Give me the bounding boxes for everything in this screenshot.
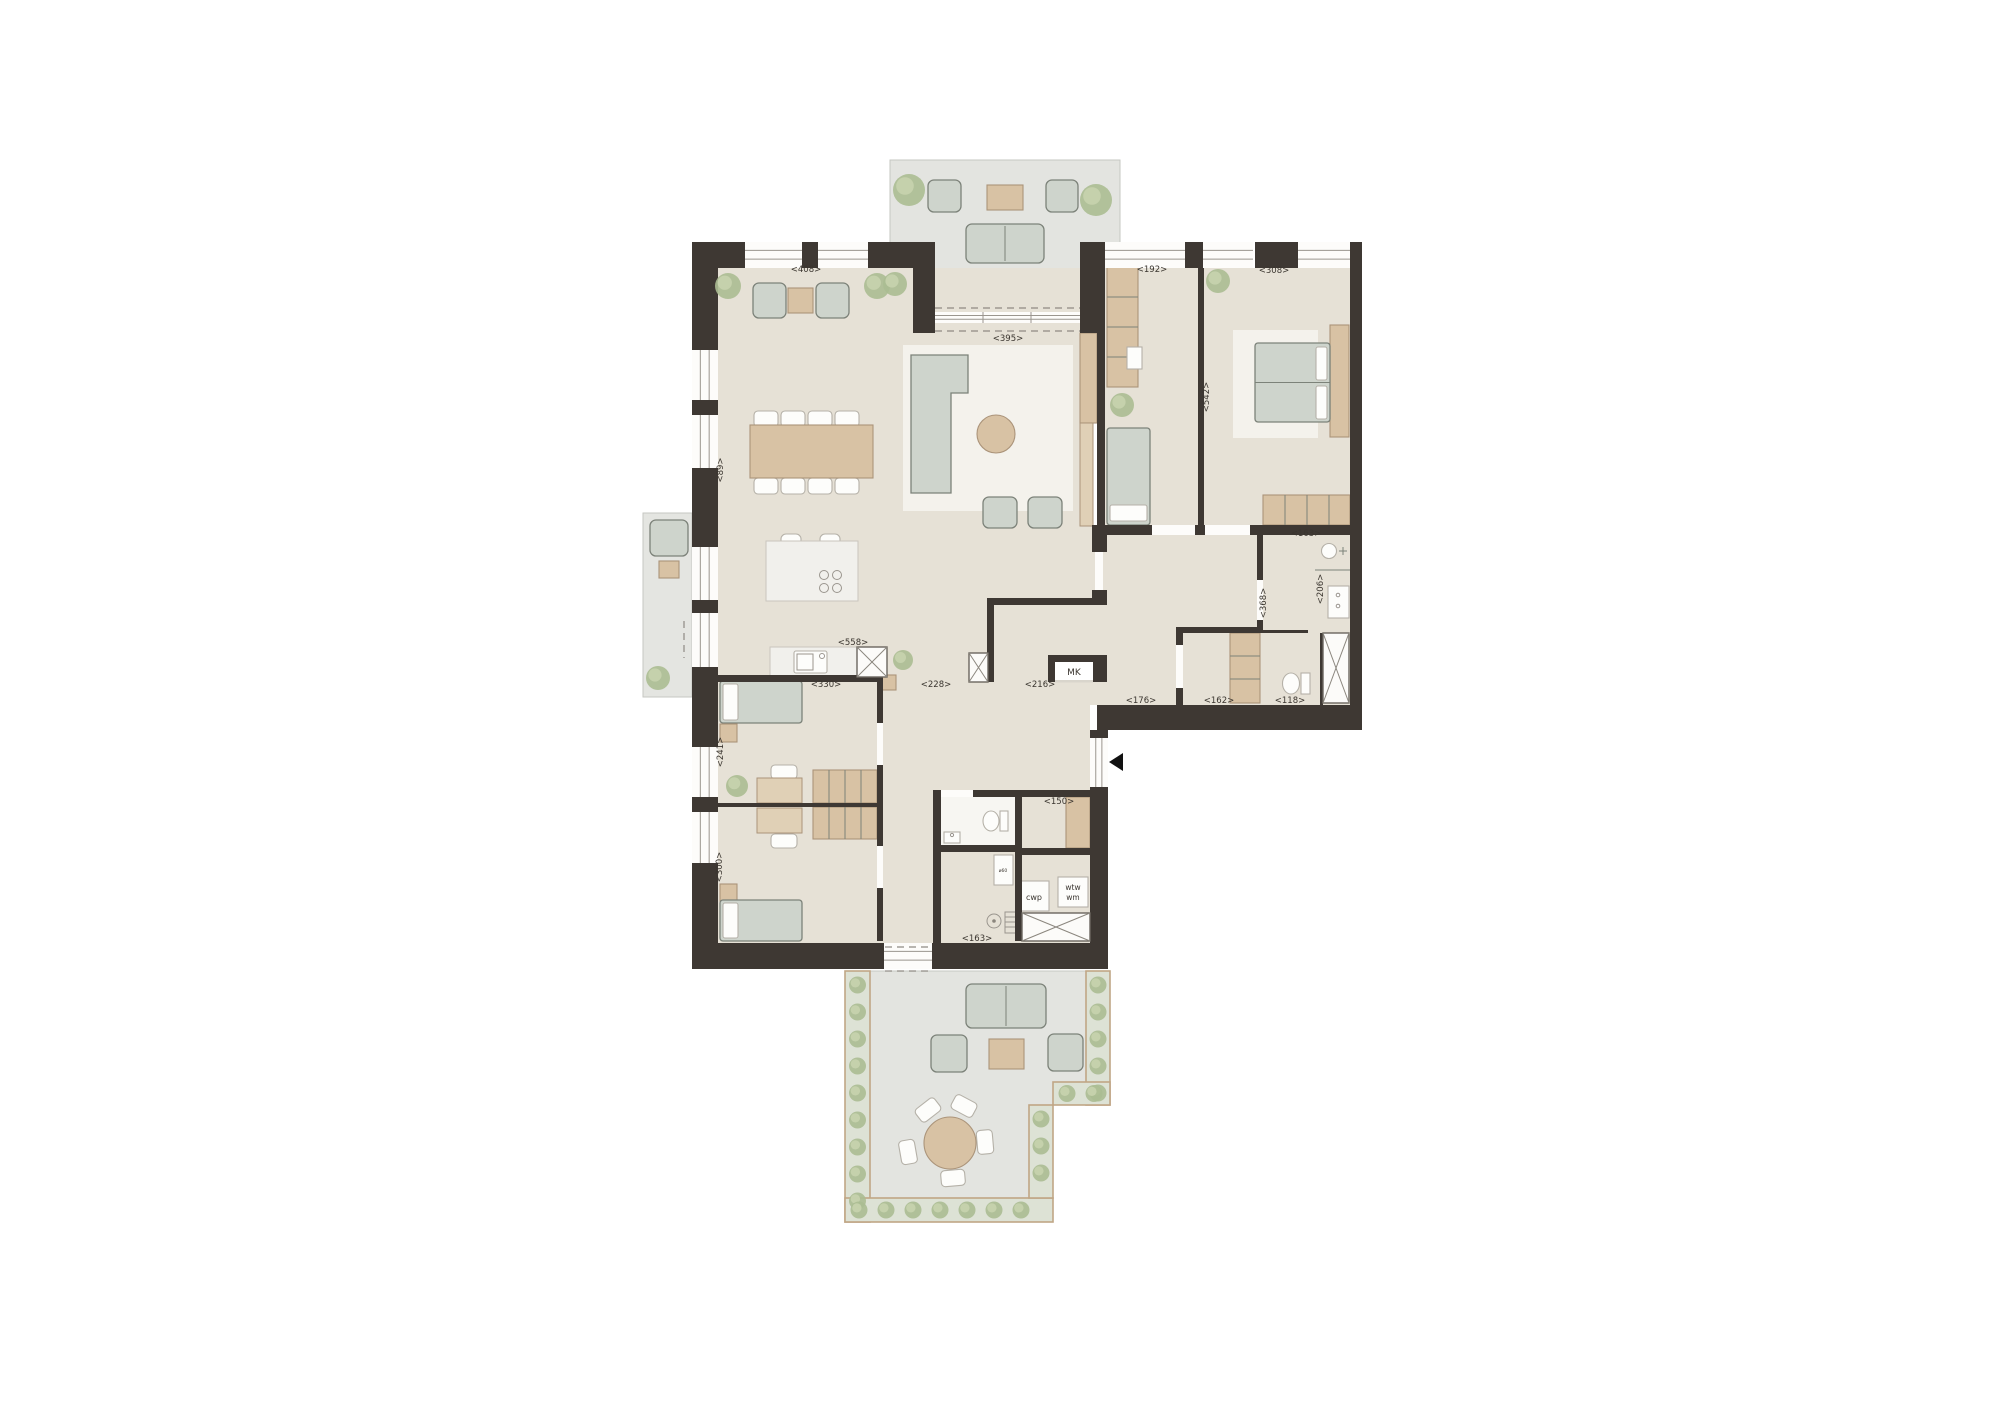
dimension-label: <192> [1137,265,1167,275]
dimension-label: <216> [1025,680,1055,690]
plan-shape [1048,1034,1083,1071]
nightstand [720,884,737,901]
plan-shape [808,478,832,494]
plant-icon [648,668,661,681]
dimension-label: <89> [716,457,726,482]
door-opening [877,846,883,888]
plan-shape [1000,811,1008,831]
plan-shape [1301,673,1310,694]
plant-icon [1060,1087,1069,1096]
dimension-label: <150> [1044,797,1074,807]
window [1105,242,1138,268]
plan-shape [754,478,778,494]
plan-shape [781,478,805,494]
room-label: wtw [1065,883,1080,892]
wall-segment [1093,662,1107,682]
plan-shape [928,180,961,212]
desk [757,808,802,833]
wall-segment [1195,525,1205,535]
meter-cupboard-door [1055,680,1093,683]
dining-table [750,425,873,478]
pillow [723,903,738,938]
door-opening [1095,552,1103,590]
dimension-label: <163> [962,934,992,944]
room-label: cwp [1026,893,1042,902]
plant-icon [851,1167,860,1176]
wardrobe [1230,633,1260,703]
window [692,415,718,468]
dimension-label: <162> [1204,696,1234,706]
plant-icon [728,777,740,789]
pillow [1110,505,1147,521]
frame-line [950,833,953,836]
plant-icon [851,1032,860,1041]
door-opening [1205,525,1250,535]
plant-icon [987,1203,996,1212]
sliding-door [935,312,1080,323]
wall-segment [1185,242,1203,268]
dimension-label: <300> [715,852,725,882]
ottoman [1028,497,1062,528]
plant-icon [1091,1059,1100,1068]
plan-shape [992,919,996,923]
plant-icon [885,274,898,287]
cabinet [1080,333,1097,423]
desk [1127,347,1142,369]
plant-icon [1208,271,1221,284]
round-dining-table [924,1117,976,1169]
plant-icon [851,1005,860,1014]
room-label: ø60 [999,868,1008,874]
wall-segment [692,797,718,812]
wall-segment [692,675,883,682]
dimension-label: <558> [838,638,868,648]
plant-icon [851,1059,860,1068]
wall-segment [1092,525,1152,535]
door-opening [877,723,883,765]
sink-icon [794,651,827,673]
wall-segment [718,803,877,807]
pillow [723,684,738,720]
plant-icon [879,1203,888,1212]
cabinet [1080,423,1093,526]
wall-segment [692,468,718,547]
kitchen-island [766,541,858,601]
plant-icon [851,1140,860,1149]
window [818,242,868,268]
dimension-label: <395> [993,334,1023,344]
plant-icon [1034,1112,1043,1121]
armchair [753,283,786,318]
coffee-table [977,415,1015,453]
wall-segment [933,845,1015,852]
room-label: MK [1067,668,1082,678]
dimension-label: <241> [716,737,726,767]
dimension-label: <542> [1202,382,1212,412]
wall-segment [877,888,883,941]
plant-icon [851,1086,860,1095]
plan-shape [940,1169,965,1187]
wall-segment [868,242,935,268]
wall-segment [692,400,718,415]
dimension-label: <330> [811,680,841,690]
wall-segment [1022,848,1090,855]
plan-shape [1316,386,1327,419]
plant-icon [1091,1005,1100,1014]
dimension-label: <408> [791,265,821,275]
wall-segment [987,598,1107,605]
window [692,613,718,667]
desk [757,778,802,803]
window [692,747,718,797]
wall-segment [1015,797,1022,941]
plant-icon [867,276,881,290]
wall-segment [1257,535,1263,580]
balcony-table [659,561,679,578]
wall-segment [877,681,883,723]
wall-segment [692,268,718,350]
plant-icon [1034,1139,1043,1148]
window [1203,242,1253,268]
wall-segment [932,943,1098,969]
plant-icon [851,1113,860,1122]
wall-segment [1048,655,1107,662]
headboard [1330,325,1349,437]
window [692,350,718,400]
plant-icon [851,978,860,987]
plan-shape [983,811,999,831]
plan-shape [987,185,1023,210]
wtw-wm-unit [1058,877,1088,907]
frame-line [1336,593,1340,597]
wall-segment [1048,662,1055,682]
plan-shape [1046,180,1078,212]
door-opening [1176,645,1183,688]
window [1298,242,1350,268]
plant-icon [718,276,732,290]
plan-shape [976,1129,994,1154]
plan-shape [1316,347,1327,380]
dimension-label: <163> [1291,529,1321,539]
wall-segment [1176,633,1183,645]
wall-segment [1257,620,1263,627]
floor-plan-drawing: <408><395><192><308><542><163><89><558><… [0,0,2000,1414]
floor-plan-page: <408><395><192><308><542><163><89><558><… [0,0,2000,1414]
plant-icon [895,652,906,663]
wall-segment [1090,943,1108,969]
window [692,547,718,600]
frame-line [820,654,825,659]
frame-line [1336,604,1340,608]
side-table [788,288,813,313]
toilet-icon [1283,673,1311,694]
plant-icon [1087,1087,1096,1096]
room-label: wm [1066,893,1079,902]
plant-icon [1091,978,1100,987]
wall-segment [1263,630,1308,633]
wall-segment [1090,730,1108,738]
plant-icon [1034,1166,1043,1175]
dining-set [750,411,873,494]
wall-segment [1255,242,1298,268]
plan-shape [1090,535,1350,705]
wall-segment [1097,268,1105,525]
door-opening [1152,525,1195,535]
plant-icon [1091,1032,1100,1041]
dimension-label: <228> [921,680,951,690]
plant-icon [933,1203,942,1212]
plan-shape [1283,673,1300,694]
toilet-icon [983,811,1008,831]
wall-segment [1092,535,1107,552]
plant-icon [1112,395,1125,408]
dimension-label: <118> [1275,696,1305,706]
dimension-label: <176> [1126,696,1156,706]
washbasin-icon [1322,544,1337,559]
balcony-armchair [650,520,688,556]
vanity-cabinet [1328,586,1349,618]
dimension-label: <368> [1259,588,1269,618]
plant-icon [1014,1203,1023,1212]
plant-icon [960,1203,969,1212]
plant-icon [896,177,914,195]
plant-icon [906,1203,915,1212]
wall-segment [692,600,718,613]
plan-shape [898,1139,918,1165]
dimension-label: <308> [1259,266,1289,276]
ottoman [983,497,1017,528]
wall-segment [692,943,884,969]
wall-segment [913,268,935,333]
plan-shape [835,478,859,494]
plant-icon [1083,187,1101,205]
wall-segment [933,790,941,943]
plant-icon [852,1203,861,1212]
plan-shape [931,1035,967,1072]
wall-segment [973,790,1097,797]
dimension-label: <206> [1316,574,1326,604]
wall-segment [692,242,745,268]
entrance-arrow-icon [1109,753,1123,771]
entrance-door [1090,738,1108,787]
wall-segment [1090,787,1108,943]
plan-shape [989,1039,1024,1069]
wall-segment [1176,627,1263,633]
desk-chair [771,834,797,848]
lower-terrace [845,971,1110,1222]
wall-segment [877,765,883,846]
armchair [816,283,849,318]
wall-segment [1350,242,1362,730]
wall-segment [1176,688,1183,705]
desk-chair [771,765,797,779]
wall-segment [1097,705,1362,730]
door-opening [941,790,973,797]
